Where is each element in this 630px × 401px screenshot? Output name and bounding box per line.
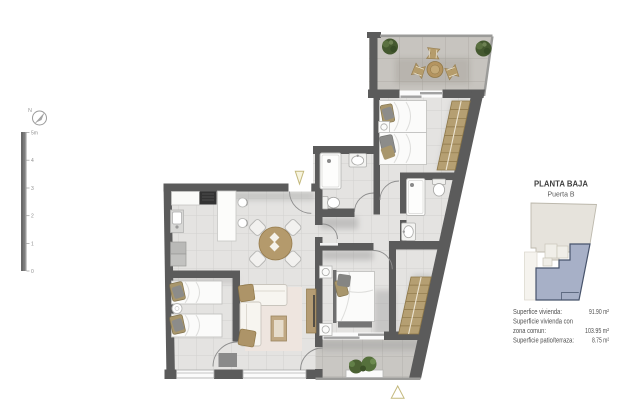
svg-text:0: 0: [31, 269, 34, 275]
svg-text:91.90 m²: 91.90 m²: [589, 309, 609, 316]
svg-text:Superficie vivienda con: Superficie vivienda con: [513, 319, 573, 326]
svg-text:3: 3: [31, 186, 34, 192]
svg-text:103.95 m²: 103.95 m²: [585, 328, 609, 335]
svg-text:2: 2: [31, 214, 34, 220]
svg-text:N: N: [28, 108, 32, 114]
svg-text:zona comun:: zona comun:: [513, 328, 546, 335]
svg-text:Puerta B: Puerta B: [548, 190, 575, 199]
svg-text:4: 4: [31, 158, 34, 164]
svg-text:PLANTA BAJA: PLANTA BAJA: [534, 179, 588, 189]
svg-text:1: 1: [31, 241, 34, 247]
svg-text:Superfice vivienda:: Superfice vivienda:: [513, 309, 562, 316]
svg-text:8.75 m²: 8.75 m²: [592, 338, 609, 345]
svg-text:Superficie patio/terraza:: Superficie patio/terraza:: [513, 338, 574, 345]
svg-text:5m: 5m: [31, 131, 38, 137]
